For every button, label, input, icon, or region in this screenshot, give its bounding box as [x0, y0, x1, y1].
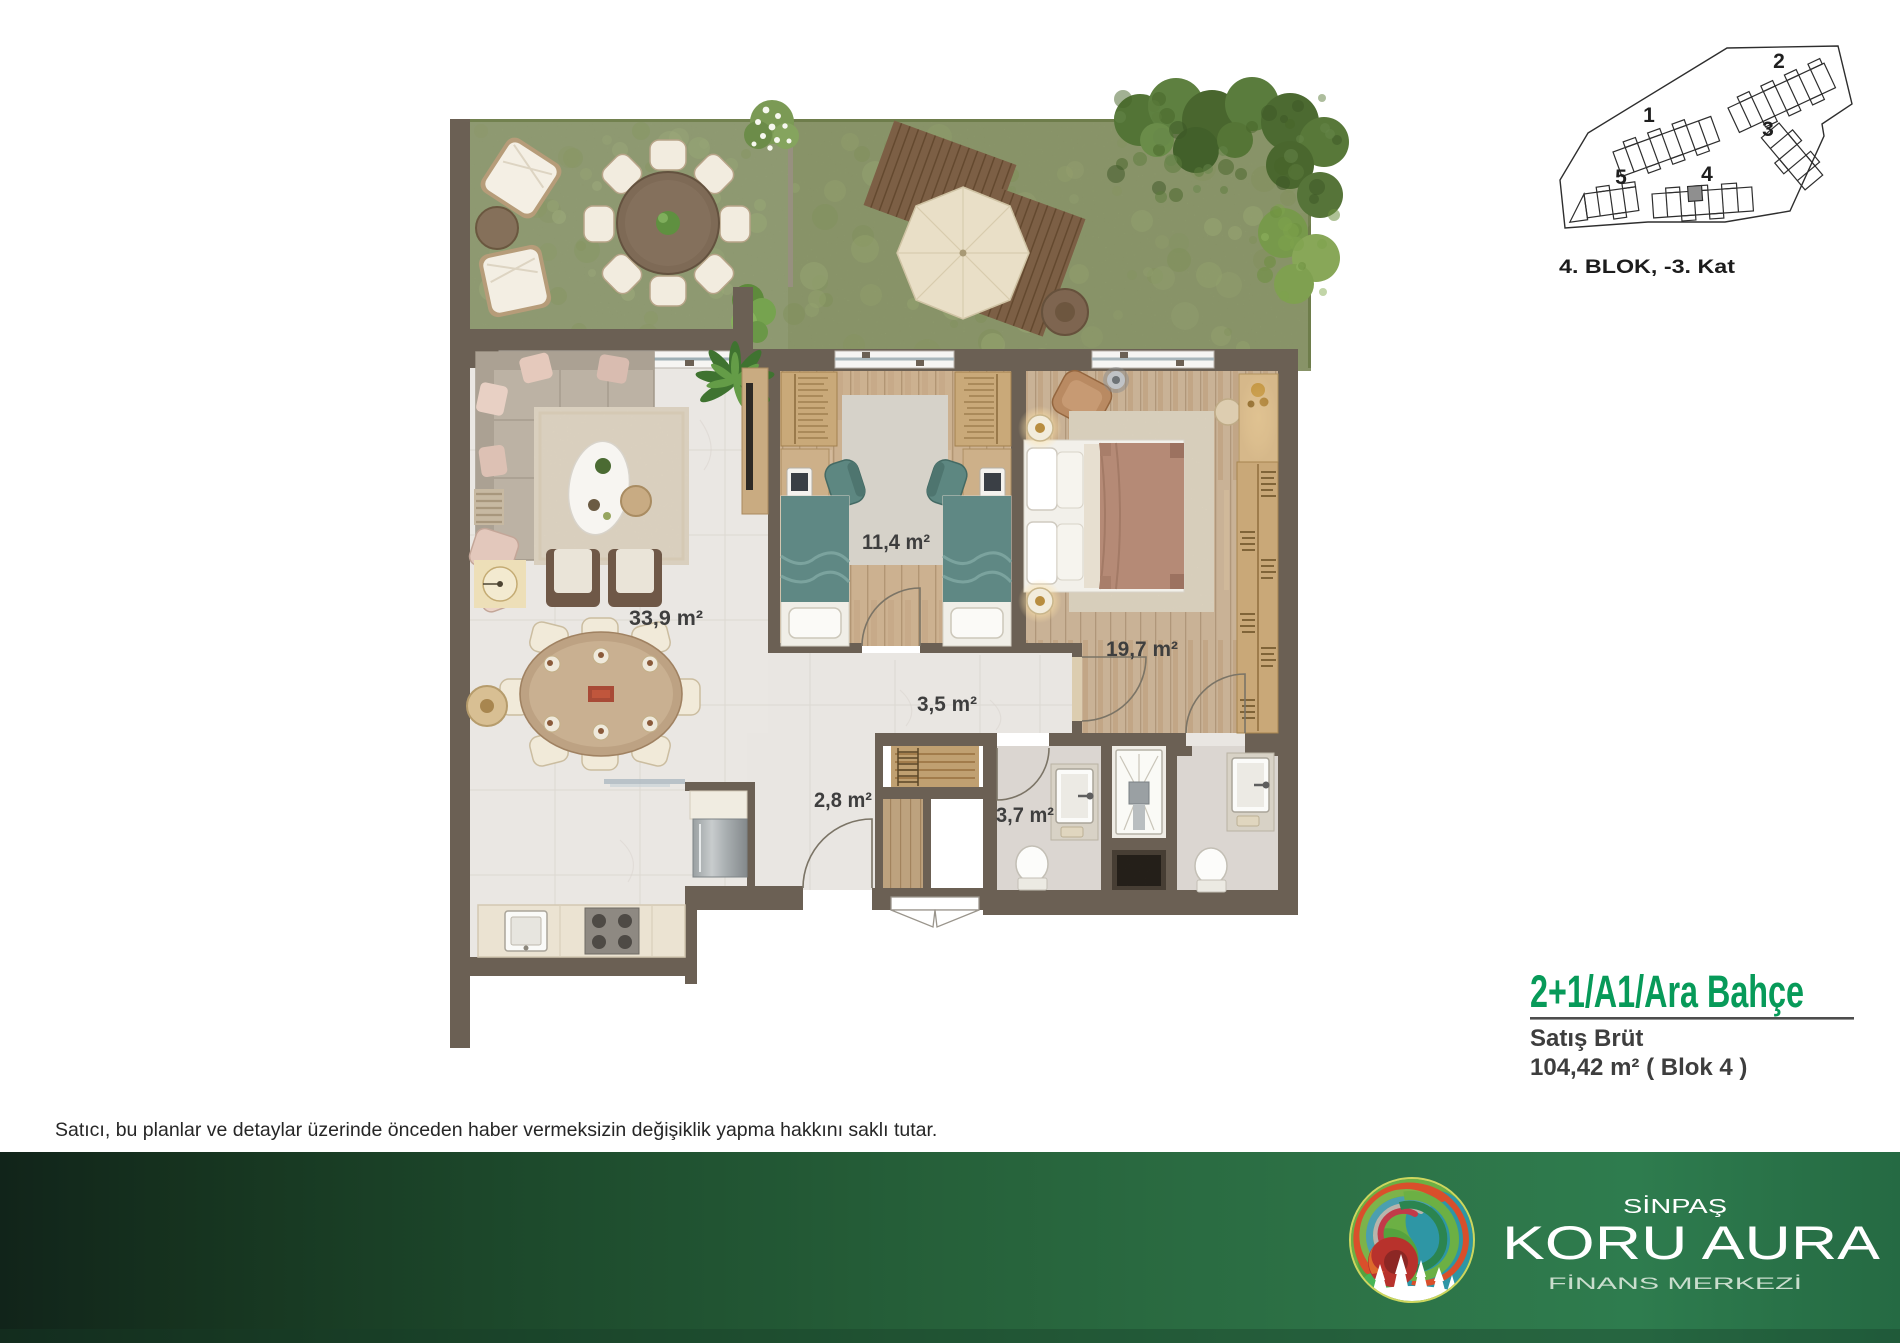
svg-text:KORU AURA: KORU AURA: [1502, 1216, 1881, 1269]
svg-text:4: 4: [1701, 163, 1713, 186]
svg-text:3,5 m²: 3,5 m²: [917, 693, 977, 716]
svg-text:33,9 m²: 33,9 m²: [629, 607, 703, 630]
svg-text:SİNPAŞ: SİNPAŞ: [1623, 1195, 1727, 1218]
svg-text:1: 1: [1643, 104, 1655, 127]
svg-text:2: 2: [1773, 50, 1785, 73]
svg-text:2,8 m²: 2,8 m²: [814, 789, 872, 812]
svg-text:5: 5: [1615, 166, 1627, 189]
svg-text:Satıcı, bu planlar ve detaylar: Satıcı, bu planlar ve detaylar üzerinde …: [55, 1119, 937, 1141]
svg-text:FİNANS MERKEZİ: FİNANS MERKEZİ: [1548, 1274, 1802, 1293]
svg-text:11,4 m²: 11,4 m²: [862, 531, 930, 554]
svg-text:3: 3: [1762, 118, 1774, 141]
svg-text:19,7 m²: 19,7 m²: [1106, 638, 1178, 661]
svg-text:4. BLOK, -3. Kat: 4. BLOK, -3. Kat: [1559, 257, 1736, 278]
svg-text:104,42 m² ( Blok 4 ): 104,42 m² ( Blok 4 ): [1530, 1054, 1747, 1081]
svg-text:Satış Brüt: Satış Brüt: [1530, 1025, 1643, 1052]
svg-text:2+1/A1/Ara Bahçe: 2+1/A1/Ara Bahçe: [1530, 966, 1804, 1017]
svg-text:3,7 m²: 3,7 m²: [996, 804, 1054, 827]
